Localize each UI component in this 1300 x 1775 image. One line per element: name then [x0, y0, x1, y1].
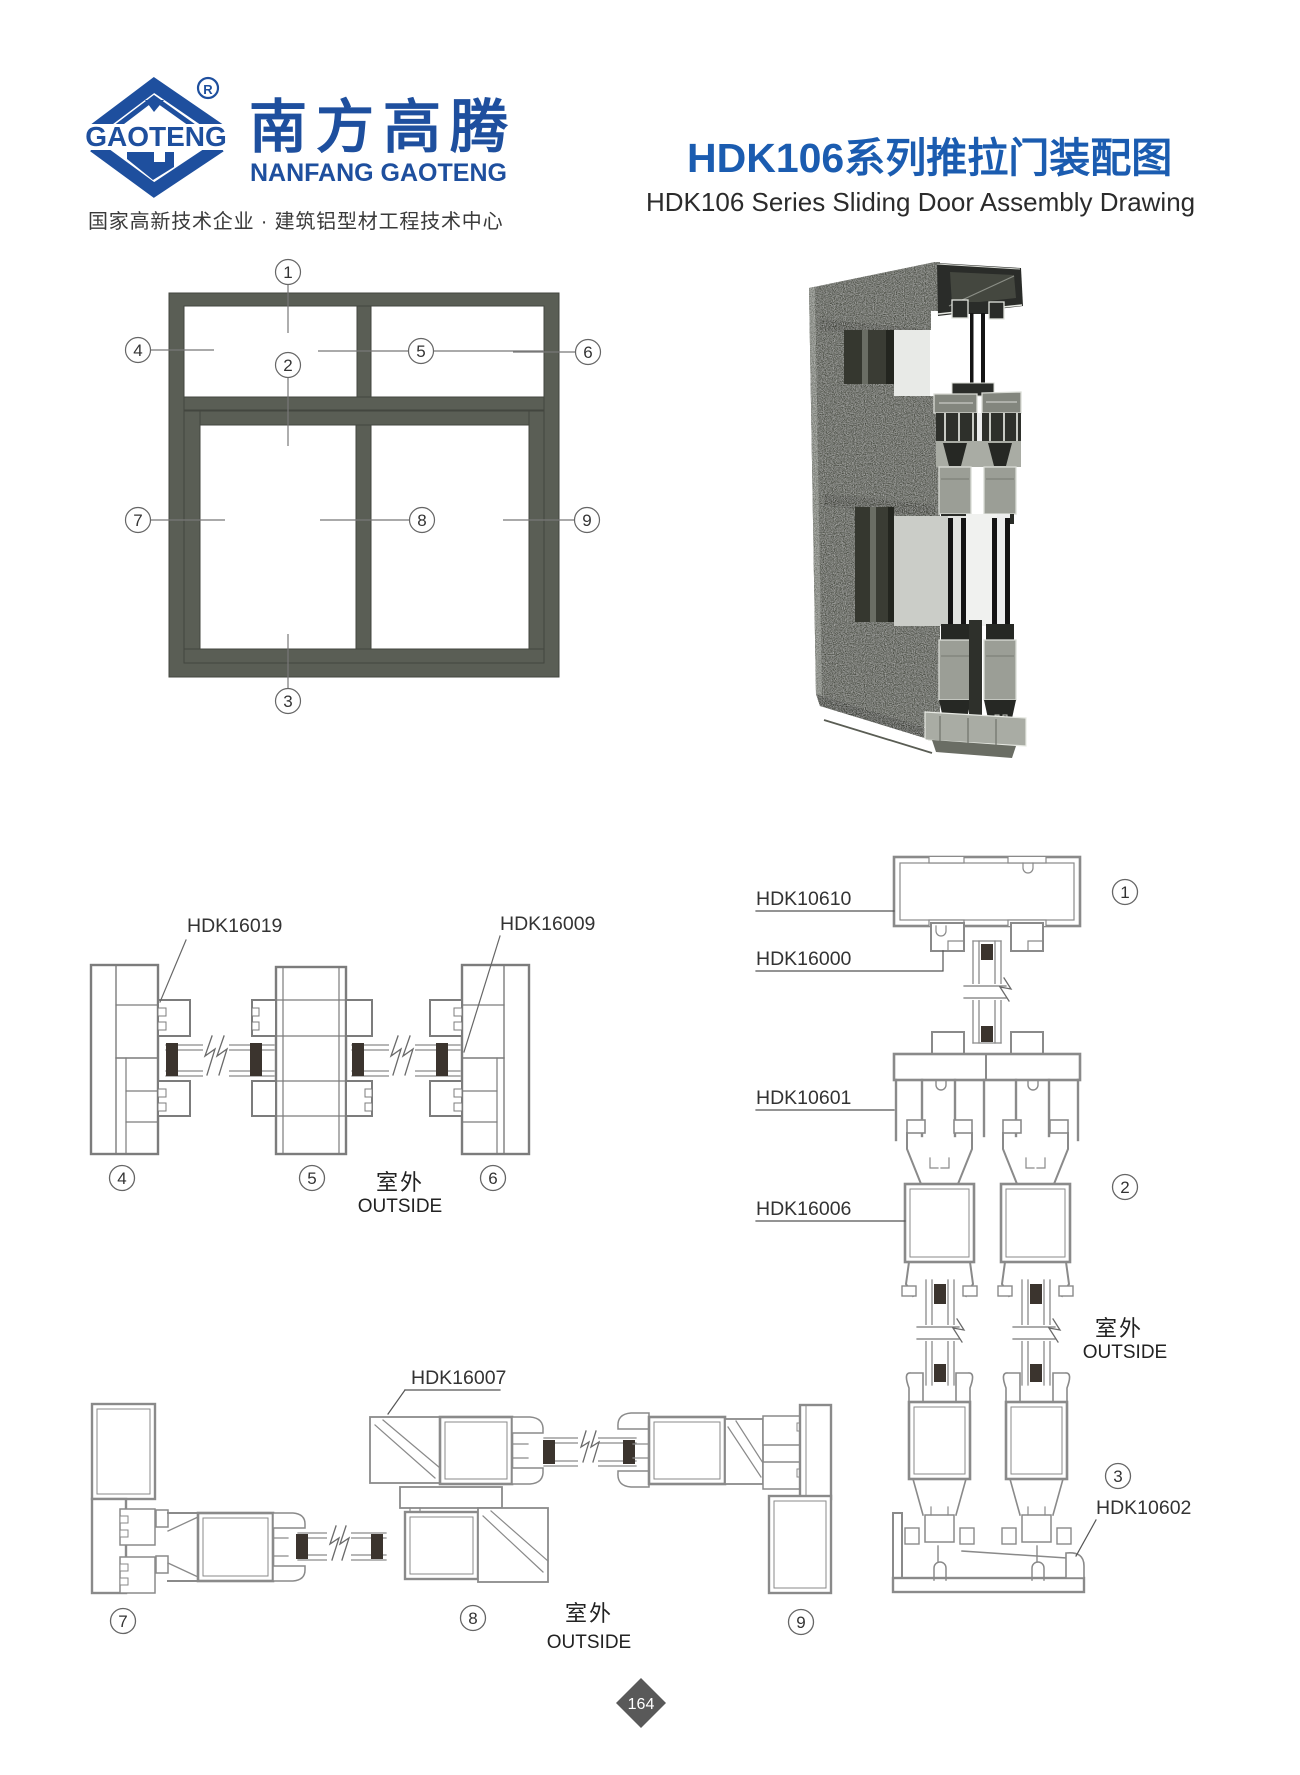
- svg-text:3: 3: [1113, 1467, 1122, 1486]
- svg-text:HDK106 Series Sliding Door Ass: HDK106 Series Sliding Door Assembly Draw…: [646, 187, 1195, 217]
- svg-text:室外: 室外: [376, 1170, 424, 1195]
- svg-text:GAOTENG: GAOTENG: [85, 121, 227, 152]
- svg-text:OUTSIDE: OUTSIDE: [547, 1632, 631, 1653]
- svg-text:2: 2: [283, 356, 292, 375]
- svg-text:9: 9: [582, 511, 591, 530]
- svg-text:HDK106系列推拉门装配图: HDK106系列推拉门装配图: [687, 135, 1172, 181]
- svg-text:1: 1: [1120, 883, 1129, 902]
- svg-text:HDK16000: HDK16000: [756, 948, 852, 970]
- svg-text:1: 1: [283, 263, 292, 282]
- svg-text:HDK16009: HDK16009: [500, 913, 595, 935]
- svg-text:R: R: [203, 82, 213, 97]
- svg-text:5: 5: [307, 1169, 316, 1188]
- svg-text:9: 9: [796, 1613, 805, 1632]
- svg-text:4: 4: [117, 1169, 126, 1188]
- svg-text:6: 6: [583, 343, 592, 362]
- svg-text:NANFANG GAOTENG: NANFANG GAOTENG: [250, 159, 507, 187]
- svg-text:室外: 室外: [565, 1601, 613, 1626]
- svg-text:4: 4: [133, 341, 142, 360]
- svg-text:6: 6: [488, 1169, 497, 1188]
- svg-text:HDK10602: HDK10602: [1096, 1497, 1191, 1519]
- svg-text:HDK10610: HDK10610: [756, 888, 852, 910]
- svg-text:7: 7: [118, 1612, 127, 1631]
- svg-text:164: 164: [628, 1696, 655, 1713]
- svg-text:OUTSIDE: OUTSIDE: [1083, 1342, 1167, 1363]
- svg-text:南方高腾: 南方高腾: [249, 95, 517, 160]
- svg-text:HDK16019: HDK16019: [187, 915, 282, 937]
- svg-text:HDK16006: HDK16006: [756, 1198, 851, 1220]
- svg-text:HDK10601: HDK10601: [756, 1087, 851, 1109]
- svg-text:3: 3: [283, 692, 292, 711]
- svg-text:2: 2: [1120, 1178, 1129, 1197]
- svg-text:8: 8: [417, 511, 426, 530]
- svg-text:8: 8: [468, 1609, 477, 1628]
- svg-text:OUTSIDE: OUTSIDE: [358, 1196, 442, 1217]
- svg-text:HDK16007: HDK16007: [411, 1367, 506, 1389]
- svg-text:7: 7: [133, 511, 142, 530]
- svg-text:国家高新技术企业 · 建筑铝型材工程技术中心: 国家高新技术企业 · 建筑铝型材工程技术中心: [88, 210, 503, 233]
- svg-text:室外: 室外: [1095, 1316, 1143, 1341]
- svg-text:5: 5: [416, 342, 425, 361]
